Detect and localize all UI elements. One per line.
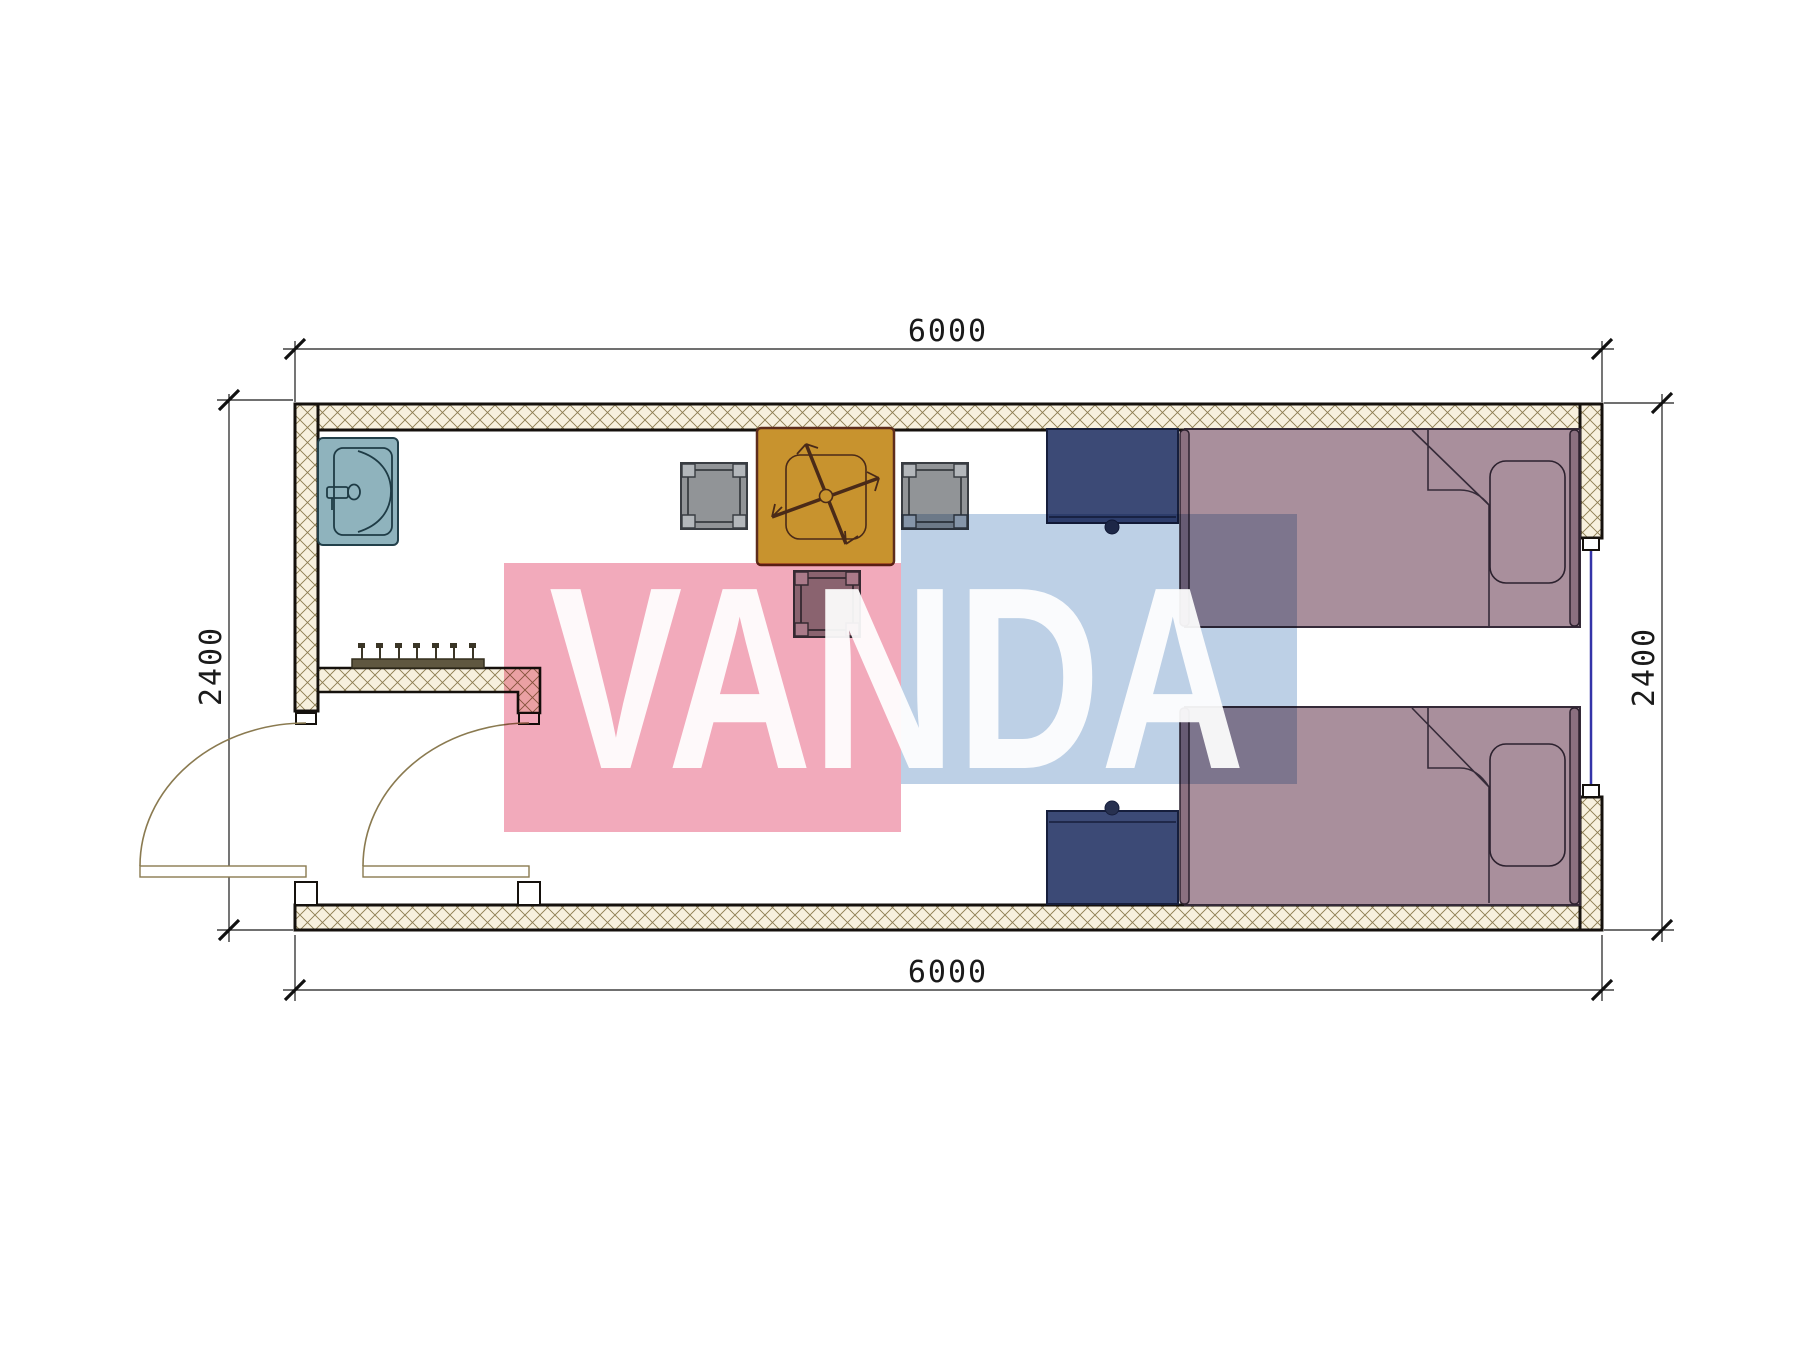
dimension-bottom-label: 6000 xyxy=(908,955,988,990)
dimension-right-label: 2400 xyxy=(1627,627,1662,707)
door-hinge-pier-middle xyxy=(518,882,540,905)
door-left-leaf xyxy=(140,866,306,877)
stool-left xyxy=(681,463,747,529)
window xyxy=(1583,538,1599,797)
dimension-left: 2400 xyxy=(194,390,293,942)
coat-rack-bar xyxy=(352,659,484,668)
bed-headboard xyxy=(1570,430,1579,626)
pillow xyxy=(1490,744,1565,866)
nightstand-body xyxy=(1047,811,1178,904)
watermark: VANDA xyxy=(504,514,1297,832)
watermark-text: VANDA xyxy=(549,534,1245,824)
right-wall-upper xyxy=(1580,404,1602,538)
left-wall xyxy=(295,404,318,711)
dimension-right: 2400 xyxy=(1604,393,1674,942)
door-left-swing-arc xyxy=(140,723,306,866)
doors xyxy=(140,723,529,877)
fan-hub-icon xyxy=(820,490,833,503)
bottom-wall xyxy=(295,905,1602,930)
dimension-top-label: 6000 xyxy=(908,314,988,349)
coat-rack xyxy=(352,643,484,668)
coat-rack-hook-caps xyxy=(358,643,476,648)
bed-headboard xyxy=(1570,708,1579,904)
nightstand-body xyxy=(1047,429,1178,523)
sink-body xyxy=(318,438,398,545)
sink xyxy=(318,438,398,545)
door-hinge-pier-left xyxy=(295,882,317,905)
window-jamb-top xyxy=(1583,538,1599,550)
dimension-bottom: 6000 xyxy=(283,935,1614,1001)
dimension-top-lines xyxy=(283,341,1614,402)
dimension-left-label: 2400 xyxy=(194,626,229,706)
dimension-top: 6000 xyxy=(283,314,1614,402)
pillow xyxy=(1490,461,1565,583)
right-wall-lower xyxy=(1580,797,1602,930)
top-wall xyxy=(295,404,1602,430)
floor-plan-page: 6000 6000 2400 2400 xyxy=(0,0,1800,1350)
coat-rack-hooks xyxy=(362,647,473,659)
door-middle-leaf xyxy=(363,866,529,877)
window-jamb-bottom xyxy=(1583,785,1599,797)
